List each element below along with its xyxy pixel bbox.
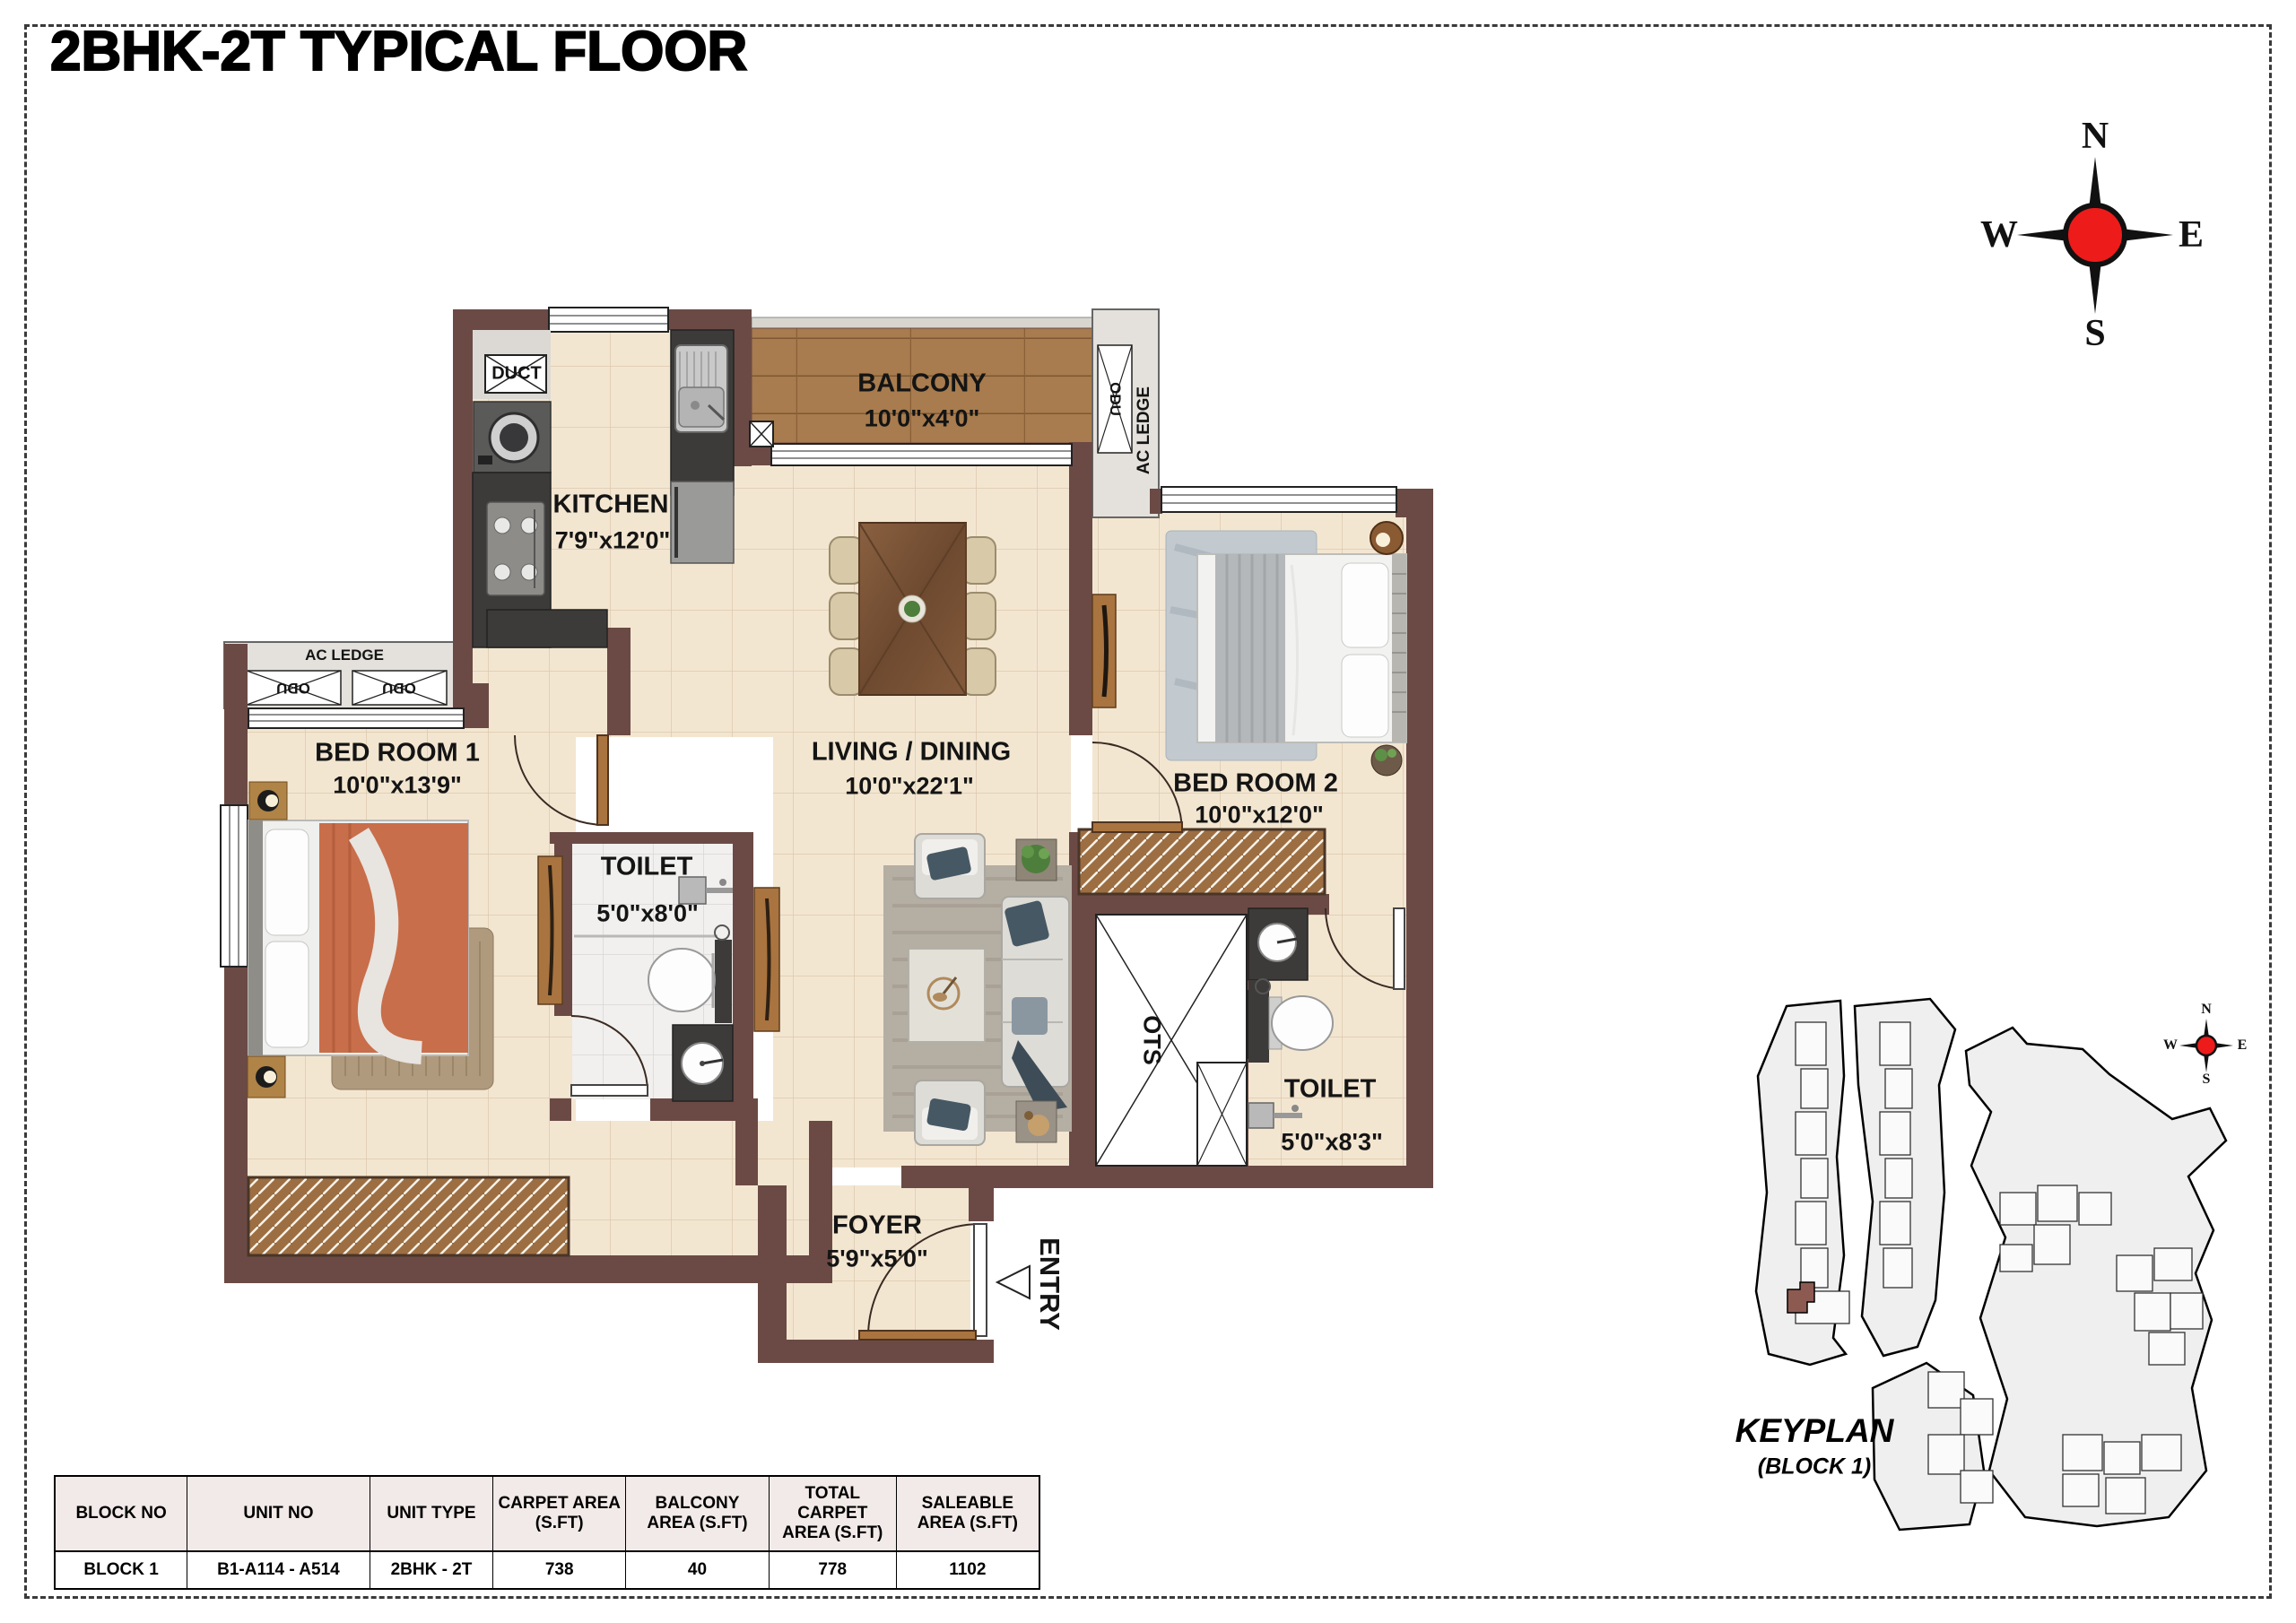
bedroom2-nightstand [1370,522,1403,554]
dining-set [830,523,996,695]
col-block-no: BLOCK NO [55,1476,187,1551]
washing-machine [474,402,551,473]
bedroom1-bed [248,820,468,1055]
compass-east-label: E [2179,213,2204,256]
bedroom1-cabinet [538,856,562,1004]
val-unit-type: 2BHK - 2T [370,1551,493,1589]
foyer-label: FOYER [832,1211,922,1241]
living-sideboard [754,888,779,1031]
bedroom1-window-left [221,805,248,967]
toilet1-vanity [673,1025,733,1101]
val-carpet-area: 738 [493,1551,626,1589]
area-table-header-row: BLOCK NO UNIT NO UNIT TYPE CARPET AREA (… [55,1476,1039,1551]
col-carpet-area: CARPET AREA (S.FT) [493,1476,626,1551]
ac-ledge-label-left: AC LEDGE [305,647,384,664]
bedroom1-nightstand-bottom [248,1056,285,1098]
kitchen-dims: 7'9"x12'0" [555,527,671,555]
entry-label: ENTRY [1033,1237,1065,1331]
page-title: 2BHK-2T TYPICAL FLOOR [50,20,747,83]
bedroom2-window [1161,487,1396,512]
toilet2-label: TOILET [1284,1075,1377,1105]
compass-north-label: N [2082,115,2109,158]
odu-label-left1: ODU [276,679,310,697]
area-table: BLOCK NO UNIT NO UNIT TYPE CARPET AREA (… [54,1475,1040,1590]
val-balcony-area: 40 [626,1551,770,1589]
living-coffee-table [909,949,985,1042]
col-total-carpet-area: TOTAL CARPET AREA (S.FT) [769,1476,896,1551]
col-unit-no: UNIT NO [187,1476,370,1551]
bedroom1-window-top [248,708,464,728]
val-saleable-area: 1102 [896,1551,1039,1589]
balcony-sliding-door [771,444,1072,465]
odu-label-left2: ODU [382,679,416,697]
keyplan-title: KEYPLAN [1735,1412,1894,1450]
toilet1-dims: 5'0"x8'0" [596,900,699,928]
fridge [671,482,734,563]
dining-table [859,523,966,695]
bedroom2-label: BED ROOM 2 [1173,769,1338,799]
stove [487,502,544,595]
keyplan-compass [2179,1019,2233,1072]
bedroom1-nightstand-top [249,782,287,820]
duct-label: DUCT [491,364,542,385]
entry-arrow [997,1266,1030,1298]
foyer-dims: 5'9"x5'0" [826,1245,928,1273]
ots-shaft [1096,915,1247,1166]
living-armchair-top [915,834,985,898]
toilet1-label: TOILET [601,853,693,882]
floorplan-graphic [0,0,2296,1623]
kitchen-label: KITCHEN [553,490,669,520]
val-block-no: BLOCK 1 [55,1551,187,1589]
keyplan-compass-west: W [2163,1037,2178,1054]
compass-rose [2017,157,2173,314]
vent-box [750,421,773,447]
keyplan-map [1756,999,2233,1530]
bedroom2-wardrobe [1079,829,1325,894]
living-set [883,834,1072,1145]
col-unit-type: UNIT TYPE [370,1476,493,1551]
keyplan-subtitle: (BLOCK 1) [1758,1454,1871,1480]
floorplan-page: 2BHK-2T TYPICAL FLOOR N E S W BALCONY 10… [0,0,2296,1623]
living-side-table [1016,1101,1057,1142]
ac-ledge-label-right: AC LEDGE [1135,386,1154,474]
keyplan-compass-north: N [2201,1002,2212,1018]
area-table-data-row: BLOCK 1 B1-A114 - A514 2BHK - 2T 738 40 … [55,1551,1039,1589]
bedroom2-tv-console [1092,595,1116,707]
balcony-label: BALCONY [857,369,986,399]
keyplan-compass-east: E [2238,1037,2248,1054]
living-plant-box [1016,839,1057,881]
bedroom2-dims: 10'0"x12'0" [1195,802,1324,829]
val-total-carpet-area: 778 [769,1551,896,1589]
bedroom1-furniture [248,782,493,1098]
living-sofa [1002,897,1069,1112]
bedroom1-wardrobe [248,1177,569,1255]
living-armchair-bottom [915,1081,985,1145]
kitchen-sink-counter [671,330,734,495]
keyplan-compass-south: S [2203,1072,2211,1088]
living-dims: 10'0"x22'1" [845,773,974,801]
kitchen-window [549,308,668,332]
bedroom1-label: BED ROOM 1 [315,739,480,768]
odu-label-right: ODU [1106,382,1124,416]
col-balcony-area: BALCONY AREA (S.FT) [626,1476,770,1551]
ots-label: OTS [1138,1015,1166,1065]
compass-west-label: W [1980,213,2018,256]
col-saleable-area: SALEABLE AREA (S.FT) [896,1476,1039,1551]
balcony-dims: 10'0"x4'0" [865,405,980,433]
bedroom1-dims: 10'0"x13'9" [333,772,462,800]
compass-south-label: S [2084,312,2105,355]
toilet2-dims: 5'0"x8'3" [1281,1129,1383,1157]
toilet2-vanity [1248,908,1308,980]
bedroom2-plant [1371,745,1402,776]
val-unit-no: B1-A114 - A514 [187,1551,370,1589]
bedroom2-bed [1197,554,1406,742]
living-label: LIVING / DINING [812,738,1011,768]
